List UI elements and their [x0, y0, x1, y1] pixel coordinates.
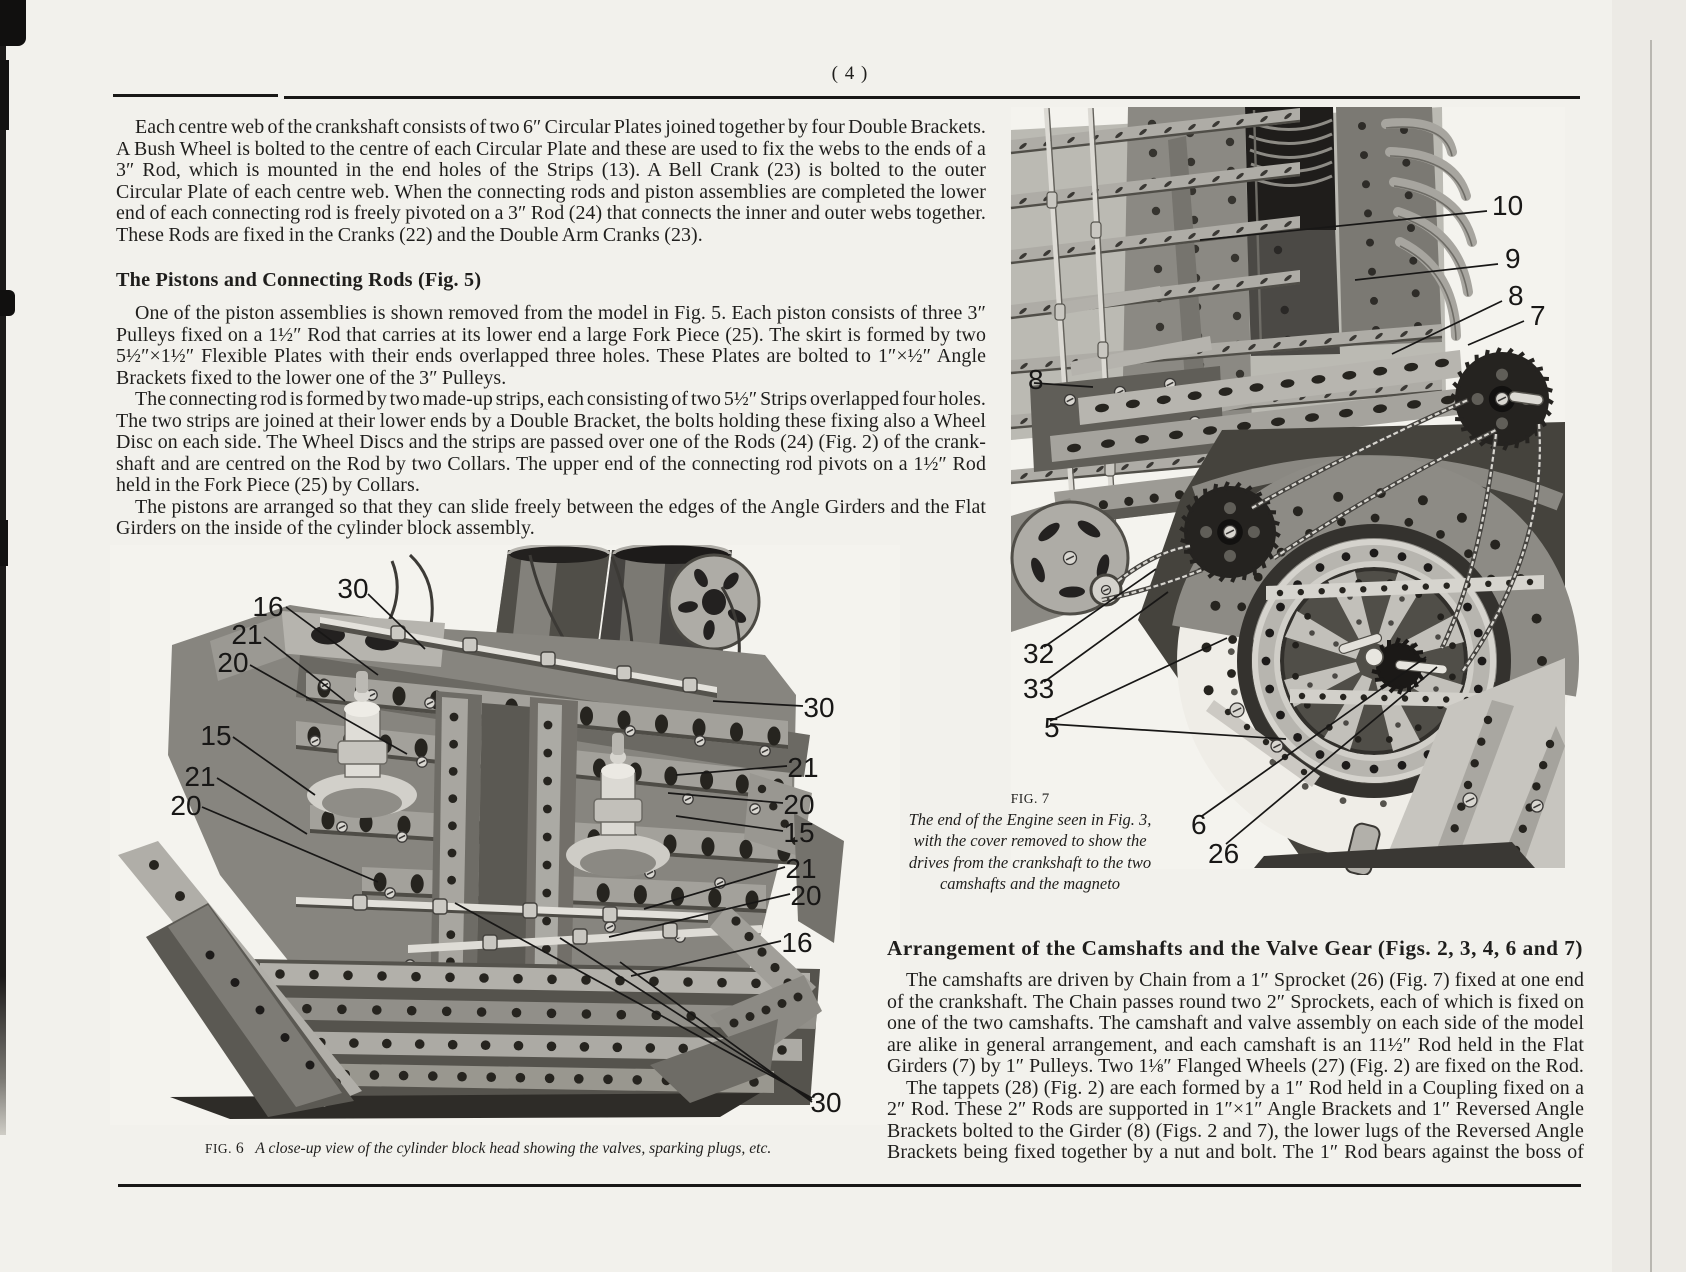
svg-text:26: 26	[1208, 838, 1239, 869]
svg-text:30: 30	[803, 692, 834, 723]
svg-text:7: 7	[1530, 300, 1546, 331]
svg-text:20: 20	[217, 647, 248, 678]
svg-text:16: 16	[252, 591, 283, 622]
svg-text:15: 15	[200, 720, 231, 751]
svg-text:20: 20	[790, 880, 821, 911]
svg-text:21: 21	[787, 752, 818, 783]
svg-text:30: 30	[337, 573, 368, 604]
svg-text:20: 20	[170, 790, 201, 821]
svg-text:10: 10	[1492, 190, 1523, 221]
svg-text:16: 16	[781, 927, 812, 958]
svg-text:9: 9	[1505, 243, 1521, 274]
svg-text:8: 8	[1508, 280, 1524, 311]
svg-text:8: 8	[1028, 364, 1044, 395]
svg-text:21: 21	[184, 761, 215, 792]
svg-text:15: 15	[783, 817, 814, 848]
svg-text:20: 20	[783, 789, 814, 820]
svg-text:5: 5	[1044, 712, 1060, 743]
svg-text:21: 21	[231, 619, 262, 650]
svg-text:30: 30	[810, 1087, 841, 1118]
